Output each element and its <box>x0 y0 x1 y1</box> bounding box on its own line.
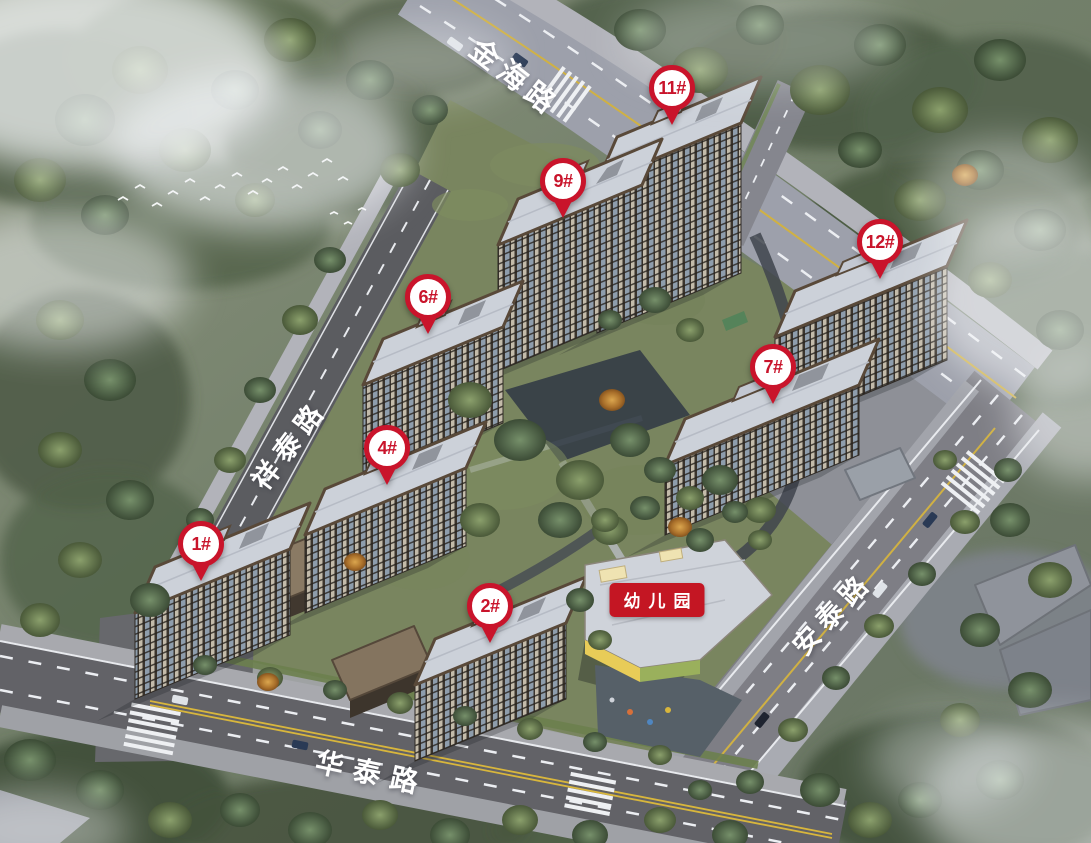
building-pin-label: 4# <box>377 439 396 457</box>
building-pin-label: 6# <box>418 288 437 306</box>
building-pin-12: 12# <box>857 219 903 283</box>
building-pin-4: 4# <box>364 425 410 489</box>
building-pin-label: 11# <box>658 79 686 97</box>
aerial-site-plan: 1# 2# 4# 6# 7# 9# 11# 12# 金海路 祥泰路 安泰路 华泰… <box>0 0 1091 843</box>
building-pin-2: 2# <box>467 583 513 647</box>
building-pin-label: 7# <box>763 358 782 376</box>
aerial-render-image <box>0 0 1091 843</box>
kindergarten-badge: 幼儿园 <box>610 583 705 617</box>
building-pin-label: 9# <box>553 172 572 190</box>
building-pin-label: 2# <box>480 597 499 615</box>
building-pin-1: 1# <box>178 521 224 585</box>
building-pin-label: 12# <box>866 233 895 251</box>
building-pin-7: 7# <box>750 344 796 408</box>
building-pin-11: 11# <box>649 65 695 129</box>
building-pin-label: 1# <box>191 535 210 553</box>
building-pin-9: 9# <box>540 158 586 222</box>
building-pin-6: 6# <box>405 274 451 338</box>
